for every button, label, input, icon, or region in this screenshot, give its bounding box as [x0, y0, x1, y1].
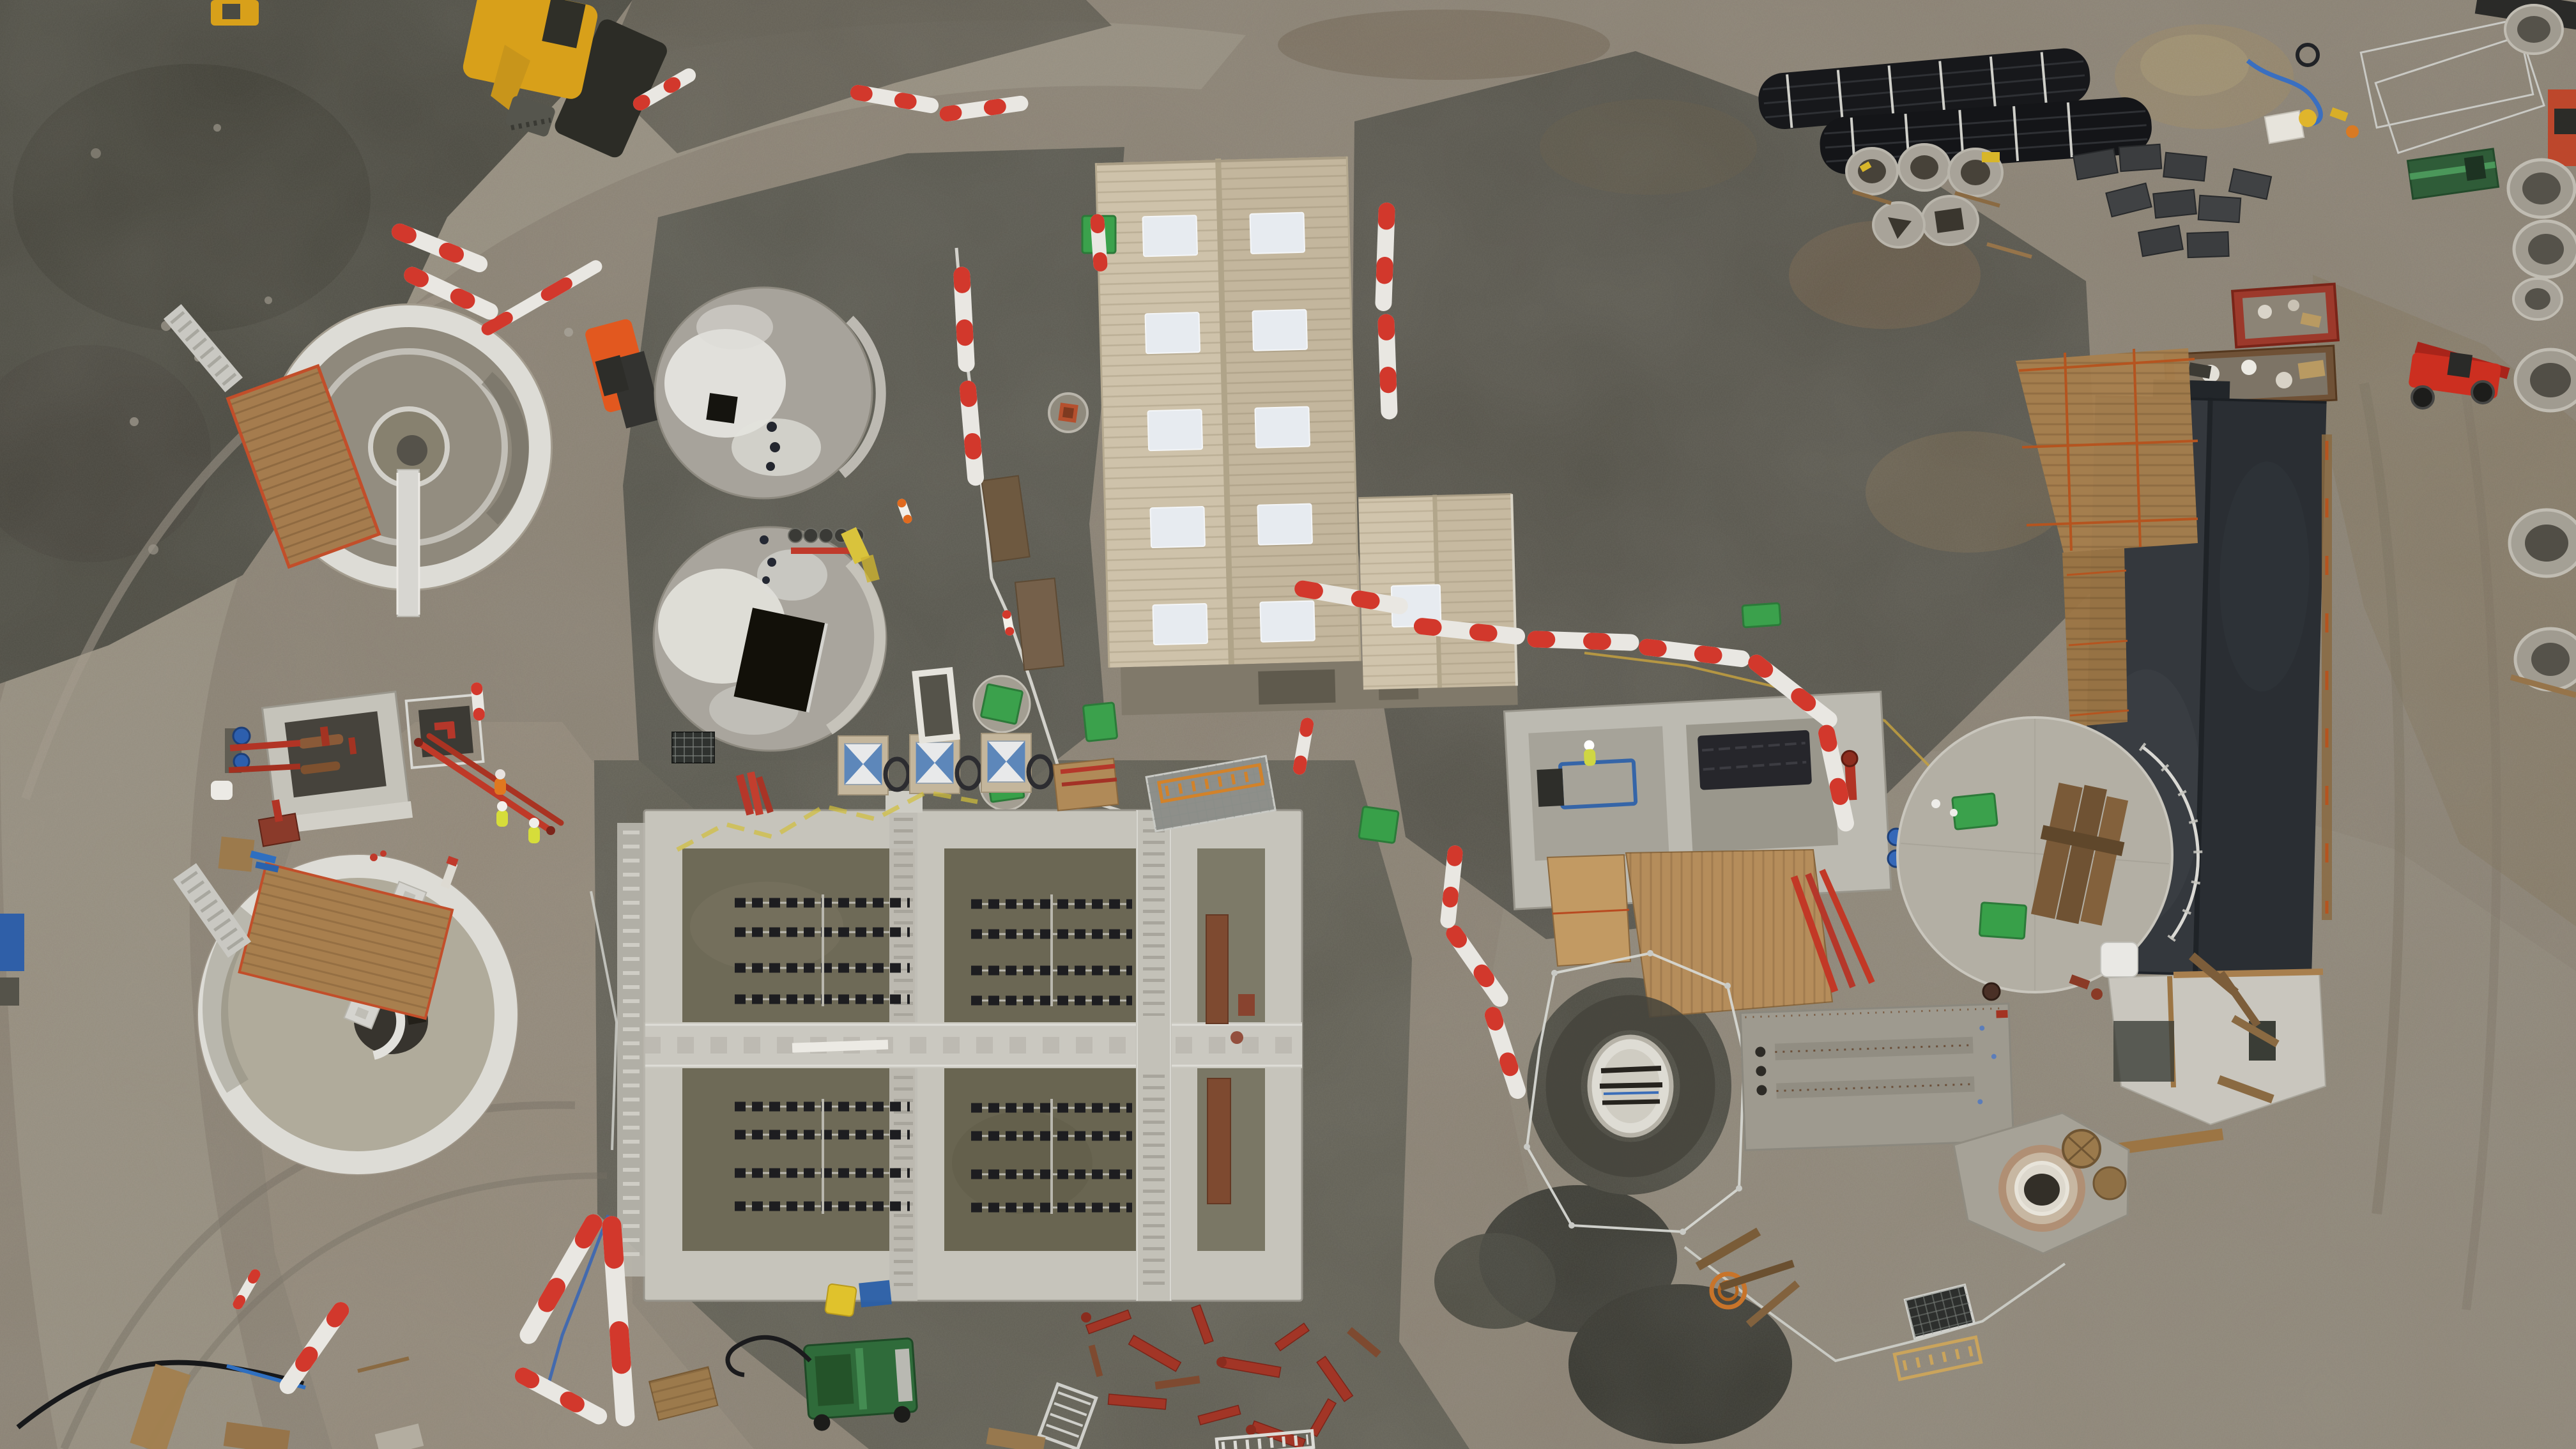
manhole-orange-cover — [1049, 394, 1087, 432]
pallet-with-red-fittings — [1053, 758, 1118, 811]
foundation-slab-rebar — [1740, 1004, 2013, 1151]
drain-grate-small — [672, 732, 714, 763]
construction-site-aerial-photo — [0, 0, 2576, 1449]
aeration-basin — [617, 791, 1302, 1301]
aerial-photo-stage — [0, 0, 2576, 1449]
machine-right-edge — [2548, 89, 2576, 166]
waste-skip-red — [2232, 284, 2338, 348]
frame-white-ground — [916, 670, 957, 740]
blower-pads — [838, 733, 1052, 795]
chamber-square-concrete — [262, 691, 413, 834]
domed-tank-b — [654, 527, 886, 751]
mini-machine-topleft — [211, 0, 259, 26]
